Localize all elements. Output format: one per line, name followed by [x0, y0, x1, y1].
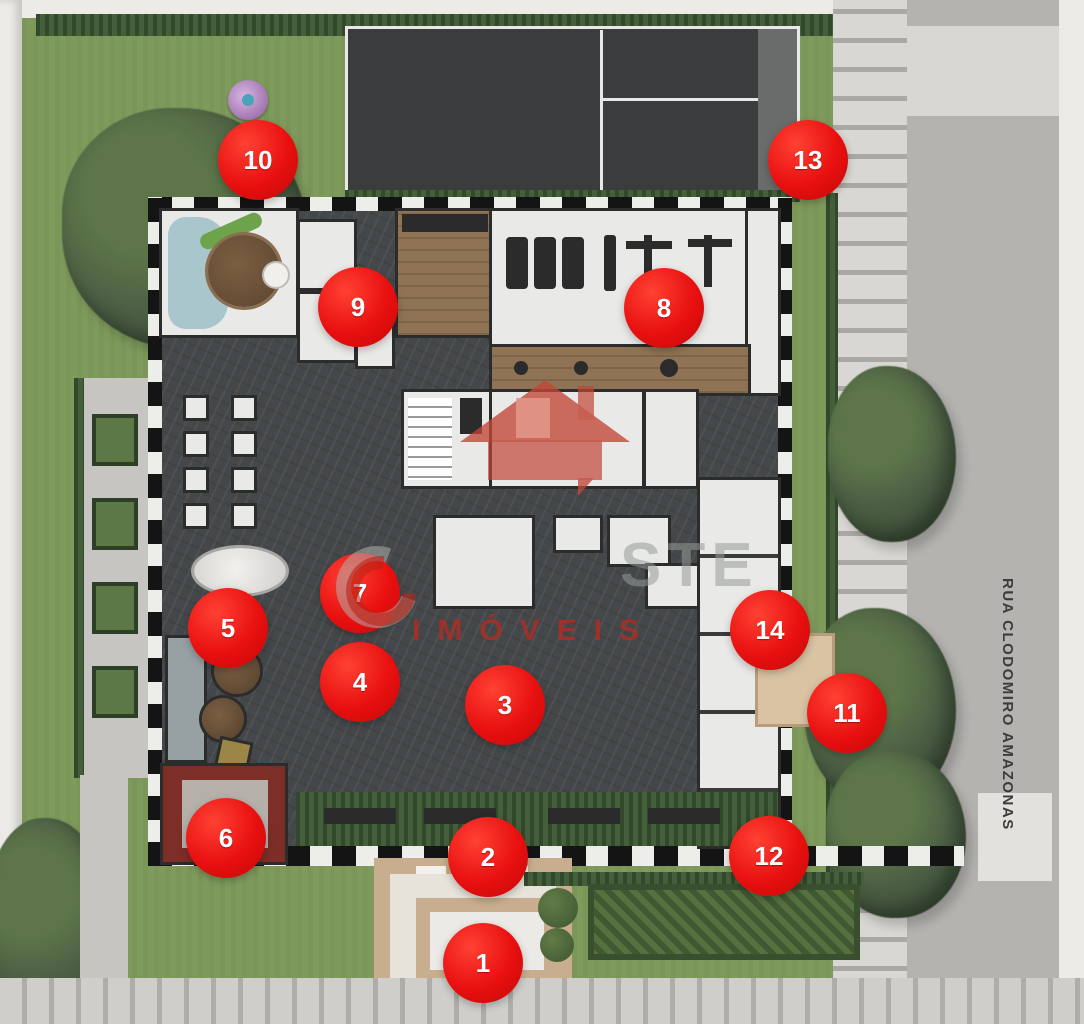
unit-marker-number: 10 — [244, 145, 273, 176]
unit-marker-14[interactable]: 14 — [730, 590, 810, 670]
unit-marker-7[interactable]: 7 — [320, 553, 400, 633]
unit-marker-number: 11 — [833, 698, 861, 729]
unit-marker-number: 7 — [353, 578, 367, 609]
unit-marker-8[interactable]: 8 — [624, 268, 704, 348]
unit-marker-number: 3 — [498, 690, 512, 721]
unit-marker-5[interactable]: 5 — [188, 588, 268, 668]
unit-marker-number: 14 — [756, 615, 785, 646]
unit-marker-11[interactable]: 11 — [807, 673, 887, 753]
unit-marker-6[interactable]: 6 — [186, 798, 266, 878]
markers-layer: 1234567891011121314 — [0, 0, 1084, 1024]
unit-marker-number: 2 — [481, 842, 495, 873]
unit-marker-number: 12 — [755, 841, 784, 872]
unit-marker-number: 6 — [219, 823, 233, 854]
unit-marker-12[interactable]: 12 — [729, 816, 809, 896]
unit-marker-3[interactable]: 3 — [465, 665, 545, 745]
unit-marker-number: 8 — [657, 293, 671, 324]
unit-marker-10[interactable]: 10 — [218, 120, 298, 200]
unit-marker-2[interactable]: 2 — [448, 817, 528, 897]
unit-marker-number: 5 — [221, 613, 235, 644]
unit-marker-number: 13 — [794, 145, 823, 176]
site-plan-canvas: RUA CLODOMIRO AMAZONAS — [0, 0, 1084, 1024]
unit-marker-4[interactable]: 4 — [320, 642, 400, 722]
unit-marker-number: 4 — [353, 667, 367, 698]
unit-marker-number: 9 — [351, 292, 365, 323]
unit-marker-13[interactable]: 13 — [768, 120, 848, 200]
unit-marker-9[interactable]: 9 — [318, 267, 398, 347]
unit-marker-1[interactable]: 1 — [443, 923, 523, 1003]
unit-marker-number: 1 — [476, 948, 490, 979]
